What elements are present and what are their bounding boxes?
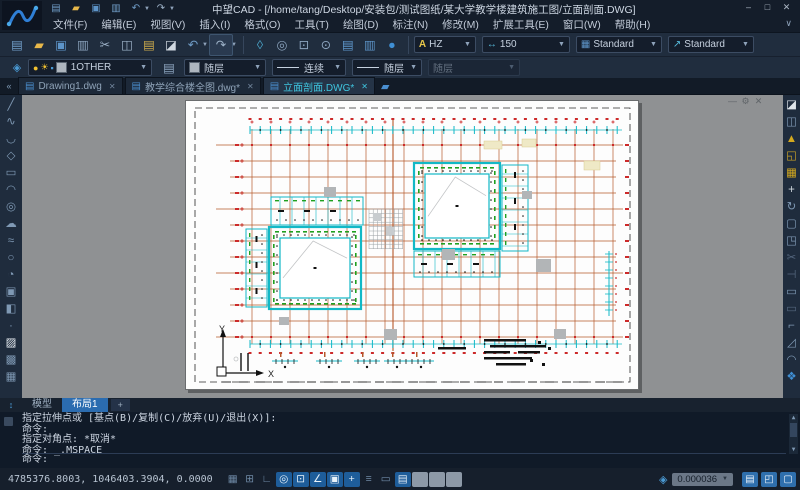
menu-item-tools[interactable]: 工具(T) [288,17,336,32]
status-image-frame-toggle[interactable]: ▣ [327,472,343,487]
open-icon[interactable]: ▰ [28,35,50,55]
new-drawing-tab-icon[interactable]: ▰ [381,80,389,93]
modify-toolbar: ◪◫▲◱▦+↻▢◳✂⊣▭▭⌐◿◠❖ [783,95,800,398]
lineweight-combo[interactable]: 随层 ▼ [352,59,422,76]
hatch-icon[interactable]: ▨ [1,335,21,352]
properties-panel-icon[interactable]: ▤ [337,35,359,55]
close-button[interactable]: ✕ [777,1,796,14]
save-icon[interactable]: ▣ [50,35,72,55]
command-history-line: 指定对角点: *取消* [22,435,786,446]
document-tab-bar: « ▤Drawing1.dwg✕▤教学综合楼全图.dwg*✕▤立面剖面.DWG*… [0,78,800,95]
command-dock-grip[interactable] [4,417,13,426]
status-snap-toggle[interactable]: ⊞ [242,472,258,487]
layout-tab-layout1[interactable]: 布局1 [62,398,108,412]
vp-gear-icon[interactable]: ⚙ [739,96,752,107]
arc-icon[interactable]: ◠ [1,182,21,199]
doc-tab-label: Drawing1.dwg [38,81,101,92]
window-title: 中望CAD - [/home/tang/Desktop/安装包/测试图纸/某大学… [212,2,636,17]
clean-screen-icon[interactable]: ◰ [761,472,777,487]
status-dynamic-input-toggle[interactable]: + [344,472,360,487]
explode-icon[interactable]: ❖ [782,369,800,386]
new-file-icon[interactable]: ▤ [6,35,28,55]
text-style-combo[interactable]: A HZ ▼ [414,36,476,53]
zoom-previous-icon[interactable]: ⊙ [315,35,337,55]
ellipse-icon[interactable]: ○ [1,250,21,267]
status-toggles: ▦⊞∟◎⊡∠▣+≡▭▤ [225,472,463,487]
trim-icon[interactable]: ✂ [782,250,800,267]
linetype-sample [277,67,299,68]
command-line-panel[interactable]: 指定拉伸点或 [基点(B)/复制(C)/放弃(U)/退出(X)]:命令:指定对角… [0,412,800,468]
copy-icon[interactable]: ◫ [116,35,138,55]
undo-icon[interactable]: ↶ [126,2,146,16]
dim-style-value: 150 [500,39,517,50]
chamfer-icon[interactable]: ◿ [782,335,800,352]
undo-dropdown-icon[interactable]: ▼ [144,6,150,12]
ucs-y-label: Y [219,324,225,334]
scroll-down-icon[interactable]: ▼ [789,446,798,454]
status-toggle-b-toggle [429,472,445,487]
zwcad-window: ▤▰▣▥↶▼↷▼ 中望CAD - [/home/tang/Desktop/安装包… [0,0,800,490]
text-style-value: HZ [429,39,442,50]
menu-item-dimension[interactable]: 标注(N) [386,17,436,32]
layout-tab-model[interactable]: 模型 [22,398,62,412]
add-layout-button[interactable]: + [111,399,130,411]
status-ortho-toggle[interactable]: ∟ [259,472,275,487]
scrollbar-thumb[interactable] [790,423,797,437]
ucs-x-label: X [268,369,274,379]
standard-toolbar: ▤▰▣▥✂◫▤◪↶▼↷▼◊◎⊡⊙▤▥● A HZ ▼ ↔ 150 ▼ ▦ Sta… [0,32,800,56]
table-style-combo[interactable]: ▦ Standard ▼ [576,36,662,53]
rotate-icon[interactable]: ↻ [782,199,800,216]
arc-3point-icon[interactable]: ◡ [1,131,21,148]
join-icon[interactable]: ⌐ [782,318,800,335]
toolbar-separator [243,36,244,54]
tab-close-icon[interactable]: ✕ [361,82,368,91]
mleader-style-icon: ↗ [673,39,681,50]
fillet-icon[interactable]: ◠ [782,352,800,369]
menu-item-file[interactable]: 文件(F) [46,17,94,32]
stretch-icon[interactable]: ◳ [782,233,800,250]
linetype-value: 连续 [304,60,324,75]
plot-icon[interactable]: ▥ [72,35,94,55]
viewport-scale-combo[interactable]: 0.000036 ▼ [672,473,733,486]
offset-icon[interactable]: ◱ [782,148,800,165]
purge-icon[interactable]: ◊ [249,35,271,55]
draw-toolbar: ╱∿◡◇▭◠◎☁≈○◔▣◧∙▨▩▦ [0,95,22,398]
dim-style-combo[interactable]: ↔ 150 ▼ [482,36,570,53]
status-paper-model-toggle[interactable]: ▤ [395,472,411,487]
layout-nav-icon[interactable]: ↕ [0,400,22,410]
menu-item-format[interactable]: 格式(O) [237,17,287,32]
table-icon[interactable]: ▦ [1,369,21,386]
command-prompt[interactable]: 命令: [22,454,48,465]
save-icon[interactable]: ▣ [86,2,106,16]
fullscreen-icon[interactable]: ▢ [780,472,796,487]
table-style-icon: ▦ [581,39,590,50]
sheet-set-icon[interactable]: ▥ [359,35,381,55]
text-style-icon: A [419,39,426,50]
open-icon[interactable]: ▰ [66,2,86,16]
plan-drawing: YX [186,101,638,389]
new-file-icon[interactable]: ▤ [46,2,66,16]
revision-cloud-icon[interactable]: ☁ [1,216,21,233]
layer-thaw-icon: ☀ [40,62,48,73]
command-scrollbar[interactable]: ▲ ▼ [789,414,798,454]
move-icon[interactable]: + [782,182,800,199]
doc-tab-label: 立面剖面.DWG* [283,79,354,94]
spline-icon[interactable]: ≈ [1,233,21,250]
status-selection-cycling-toggle[interactable]: ▭ [378,472,394,487]
status-lineweight-display-toggle[interactable]: ≡ [361,472,377,487]
status-grid-toggle[interactable]: ▦ [225,472,241,487]
menu-item-draw[interactable]: 绘图(D) [336,17,386,32]
menu-item-insert[interactable]: 插入(I) [192,17,237,32]
plot-style-value: 随层 [433,60,453,75]
redo-icon[interactable]: ↷ [151,2,171,16]
drawing-canvas[interactable]: YX — ⚙ ✕ [22,95,783,398]
extend-icon[interactable]: ⊣ [782,267,800,284]
match-properties-icon[interactable]: ◪ [160,35,182,55]
status-toggle-a-toggle [412,472,428,487]
layout-paper[interactable]: YX [185,100,639,390]
polygon-icon[interactable]: ◇ [1,148,21,165]
command-history-line: 命令: [22,425,786,436]
table-style-value: Standard [593,39,634,50]
color-swatch [189,62,200,73]
tab-scroll-icon[interactable]: « [0,81,18,91]
break-at-point-icon[interactable]: ▭ [782,284,800,301]
color-value: 随层 [204,60,224,75]
dwg-file-icon: ▤ [132,81,141,92]
minimize-button[interactable]: – [739,1,758,14]
main-area: ╱∿◡◇▭◠◎☁≈○◔▣◧∙▨▩▦ YX — ⚙ ✕ ◪◫▲◱▦+↻▢◳✂⊣▭▭… [0,95,800,398]
quick-access-toolbar: ▤▰▣▥↶▼↷▼ [46,1,176,16]
redo-icon[interactable]: ↷ [209,34,233,56]
layer-lock-icon[interactable]: ◈ [6,58,28,78]
linetype-combo[interactable]: 连续 ▼ [272,59,346,76]
copy-icon[interactable]: ◫ [782,114,800,131]
scale-icon[interactable]: ▢ [782,216,800,233]
status-osnap-toggle[interactable]: ◎ [276,472,292,487]
status-toggle-c-toggle [446,472,462,487]
properties-toolbar: ◈ ● ☀ ▪ 1OTHER ▼ ▤ 随层 ▼ 连续 ▼ 随层 ▼ 随层 ▼ [0,56,800,78]
layer-on-icon: ● [33,63,38,73]
vp-minimize-icon[interactable]: — [726,96,739,107]
layout-tab-bar: ↕ 模型布局1 + [0,398,800,412]
point-icon[interactable]: ∙ [1,318,21,335]
make-block-icon[interactable]: ◧ [1,301,21,318]
layer-combo[interactable]: ● ☀ ▪ 1OTHER ▼ [28,59,152,76]
line-icon[interactable]: ╱ [1,97,21,114]
command-history: 指定拉伸点或 [基点(B)/复制(C)/放弃(U)/退出(X)]:命令:指定对角… [22,414,786,454]
coordinates-readout: 4785376.8003, 1046403.3904, 0.0000 [8,474,213,485]
break-icon[interactable]: ▭ [782,301,800,318]
doc-tab-drawing1[interactable]: ▤Drawing1.dwg✕ [18,77,123,94]
viewport-lock-icon[interactable]: ◈ [659,473,667,486]
doc-tab-label: 教学综合楼全图.dwg* [145,79,240,94]
command-history-line: 指定拉伸点或 [基点(B)/复制(C)/放弃(U)/退出(X)]: [22,414,786,425]
array-icon[interactable]: ▦ [782,165,800,182]
gradient-icon[interactable]: ▩ [1,352,21,369]
title-bar: ▤▰▣▥↶▼↷▼ 中望CAD - [/home/tang/Desktop/安装包… [0,0,800,17]
polyline-icon[interactable]: ∿ [1,114,21,131]
zoom-extents-icon[interactable]: ◎ [271,35,293,55]
dwg-file-icon: ▤ [25,81,34,92]
chevron-down-icon[interactable]: ∨ [785,18,792,29]
menu-item-view[interactable]: 视图(V) [143,17,192,32]
undo-icon[interactable]: ↶ [182,35,204,55]
design-center-icon[interactable]: ● [381,35,403,55]
menu-item-window[interactable]: 窗口(W) [556,17,608,32]
status-bar: 4785376.8003, 1046403.3904, 0.0000 ▦⊞∟◎⊡… [0,468,800,490]
rectangle-icon[interactable]: ▭ [1,165,21,182]
menu-item-help[interactable]: 帮助(H) [608,17,658,32]
paste-icon[interactable]: ▤ [138,35,160,55]
app-logo-icon [2,1,42,30]
doc-tab-limian-poumian[interactable]: ▤立面剖面.DWG*✕ [263,77,375,94]
lineweight-sample [357,67,379,68]
menu-item-edit[interactable]: 编辑(E) [94,17,143,32]
color-combo[interactable]: 随层 ▼ [184,59,266,76]
plot-icon[interactable]: ▥ [106,2,126,16]
toolbar-separator [408,36,409,54]
mirror-icon[interactable]: ▲ [782,131,800,148]
mleader-style-combo[interactable]: ↗ Standard ▼ [668,36,754,53]
menu-item-modify[interactable]: 修改(M) [435,17,486,32]
mleader-style-value: Standard [684,39,725,50]
ellipse-arc-icon[interactable]: ◔ [1,267,21,284]
circle-icon[interactable]: ◎ [1,199,21,216]
tab-close-icon[interactable]: ✕ [109,82,116,91]
tab-close-icon[interactable]: ✕ [247,82,254,91]
layer-unlock-icon: ▪ [51,63,54,73]
redo-dropdown-icon[interactable]: ▼ [169,6,175,12]
status-polar-toggle[interactable]: ∠ [310,472,326,487]
doc-tab-jiaoxue-quantu[interactable]: ▤教学综合楼全图.dwg*✕ [125,77,261,94]
lineweight-value: 随层 [384,60,404,75]
dwg-file-icon: ▤ [270,81,279,92]
layer-color-swatch [56,62,67,73]
menu-bar: 文件(F)编辑(E)视图(V)插入(I)格式(O)工具(T)绘图(D)标注(N)… [0,17,800,32]
zoom-window-icon[interactable]: ⊡ [293,35,315,55]
viewport-scale-value: 0.000036 [677,474,717,485]
cut-icon[interactable]: ✂ [94,35,116,55]
workspace-icon[interactable]: ▤ [742,472,758,487]
scroll-up-icon[interactable]: ▲ [789,414,798,422]
insert-block-icon[interactable]: ▣ [1,284,21,301]
layer-value: 1OTHER [71,62,112,73]
erase-icon[interactable]: ◪ [782,97,800,114]
status-object-track-toggle[interactable]: ⊡ [293,472,309,487]
viewport-controls: — ⚙ ✕ [726,96,765,107]
dim-style-icon: ↔ [487,39,497,50]
plot-style-combo: 随层 ▼ [428,59,520,76]
vp-close-icon[interactable]: ✕ [752,96,765,107]
menu-item-express[interactable]: 扩展工具(E) [486,17,556,32]
maximize-button[interactable]: □ [758,1,777,14]
layer-states-icon[interactable]: ▤ [158,58,180,78]
